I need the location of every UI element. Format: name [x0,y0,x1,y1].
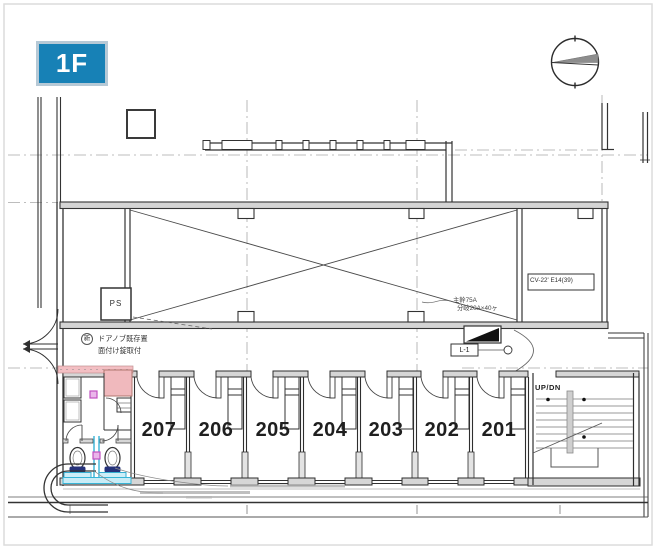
room-label-202: 202 [414,417,470,443]
room-label-205: 205 [245,417,301,443]
room-label-203: 203 [358,417,414,443]
top-right-walls [602,103,650,163]
room-label-207: 207 [131,417,187,443]
door-note-badge: 新 [81,333,93,345]
room-label-206: 206 [188,417,244,443]
room-label-204: 204 [302,417,358,443]
upper-wing-structure [203,141,452,203]
pipe-shaft-label: PS [101,288,131,320]
large-room [125,208,607,322]
breaker-note-line2: 分岐20A×40ヶ [457,303,498,312]
room-doors [137,377,504,398]
toilet-block [58,366,133,484]
floor-plan-canvas: 1F 207 206 205 204 203 202 201 PS UP/DN … [0,0,656,549]
panel-tag-label: L-1 [451,345,478,356]
toilet-fixture [64,448,91,479]
door-note-line1: ドアノブ既存置 [98,334,148,344]
grid-lines [8,95,648,372]
detached-square [127,110,155,138]
cable-spec-label: CV-22' E14(39) [530,277,593,284]
door-note-line2: 面付け錠取付 [98,346,141,356]
room-row-top-wall [63,371,639,377]
toilet-fixture [99,448,126,479]
entrance-door-swings [23,309,58,384]
room-row-bottom-wall [60,478,640,486]
north-arrow-icon [552,36,599,89]
corridor-right-lines [608,333,648,517]
room-label-201: 201 [471,417,527,443]
ground-lines [8,489,648,517]
floor-badge: 1F [36,41,108,86]
stair-direction-label: UP/DN [535,383,579,392]
main-walls [60,202,608,329]
